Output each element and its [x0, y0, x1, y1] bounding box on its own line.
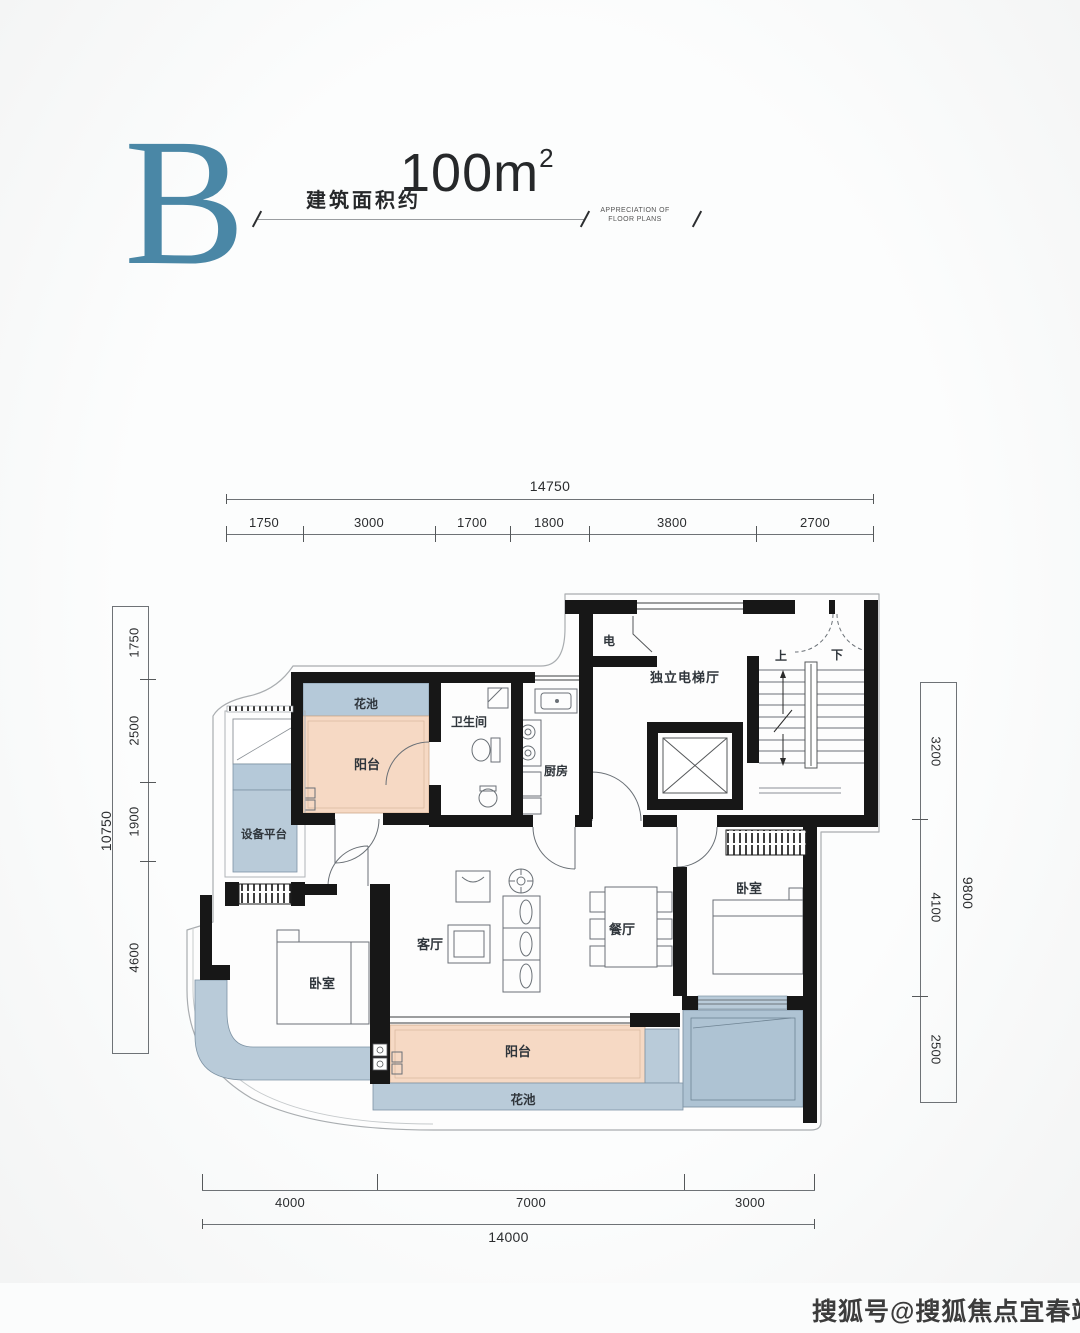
dim-seg: 3000	[715, 1195, 785, 1210]
floor-plan-svg: 电 独立电梯厅 上 下 花池 阳台 卫生间 厨房 设备平台 卧室 客厅 餐厅 卧…	[185, 592, 885, 1152]
dim-seg: 4600	[127, 928, 142, 988]
dim-line	[148, 606, 149, 1054]
label-dining-room: 餐厅	[608, 922, 635, 937]
dim-line	[226, 534, 874, 535]
dim-seg: 1750	[127, 613, 142, 673]
dim-seg: 7000	[496, 1195, 566, 1210]
label-electrical: 电	[603, 633, 615, 648]
unit-letter: B	[124, 112, 245, 294]
header-rule	[258, 219, 584, 220]
tagline: APPRECIATION OF FLOOR PLANS	[596, 206, 674, 224]
label-living-room: 客厅	[417, 937, 443, 952]
dim-tick	[756, 526, 757, 542]
dim-seg: 2500	[127, 701, 142, 761]
dim-seg: 4000	[255, 1195, 325, 1210]
dim-left-total: 10750	[98, 801, 114, 861]
dim-chain-left: 1750 2500 1900 4600 10750	[102, 606, 166, 1054]
dim-cap	[112, 606, 148, 607]
dotted-band	[227, 706, 293, 712]
area-value: 100m2	[400, 142, 554, 204]
dim-seg: 3800	[637, 515, 707, 530]
label-stair-up: 上	[775, 648, 787, 663]
dim-seg: 1900	[127, 792, 142, 852]
dim-seg: 2700	[780, 515, 850, 530]
dim-line	[202, 1190, 815, 1191]
area-unit: m	[493, 143, 539, 203]
dim-cap	[920, 1102, 956, 1103]
dim-chain-right: 3200 4100 2500 9800	[908, 682, 972, 1103]
label-balcony-top: 阳台	[354, 757, 380, 772]
label-equipment-platform: 设备平台	[241, 827, 287, 841]
label-flower-bed-top: 花池	[354, 696, 378, 711]
dim-seg: 2500	[929, 1020, 944, 1080]
dim-line	[202, 1224, 815, 1225]
equipment-tank	[233, 719, 297, 764]
dim-tick	[435, 526, 436, 542]
dim-tick	[912, 996, 928, 997]
dim-bottom-total: 14000	[202, 1229, 815, 1245]
tagline-line2: FLOOR PLANS	[596, 215, 674, 224]
dim-seg: 3200	[929, 722, 944, 782]
dim-tick	[226, 494, 227, 504]
dim-seg: 1800	[514, 515, 584, 530]
dim-tick	[140, 679, 156, 680]
dim-tick	[303, 526, 304, 542]
label-flower-bed-bottom: 花池	[510, 1092, 536, 1107]
header-rule-tick-end	[692, 211, 702, 228]
area-number: 100	[400, 143, 493, 203]
dim-tick	[202, 1174, 203, 1190]
dim-seg: 1750	[229, 515, 299, 530]
dim-line	[920, 682, 921, 1103]
dim-tick	[912, 819, 928, 820]
dim-cap	[920, 682, 956, 683]
dim-line	[226, 499, 874, 500]
dim-cap	[112, 1053, 148, 1054]
dim-right-total: 9800	[960, 863, 976, 923]
label-bathroom: 卫生间	[451, 714, 487, 729]
dim-tick	[814, 1219, 815, 1229]
tagline-line1: APPRECIATION OF	[596, 206, 674, 215]
dim-line	[956, 682, 957, 1103]
dim-seg: 3000	[334, 515, 404, 530]
dim-tick	[140, 782, 156, 783]
floorplan-page: B 建筑面积约 100m2 APPRECIATION OF FLOOR PLAN…	[0, 0, 1080, 1333]
dim-tick	[684, 1174, 685, 1190]
dim-top-total: 14750	[226, 478, 874, 494]
label-elevator-hall: 独立电梯厅	[650, 670, 720, 685]
dim-tick	[202, 1219, 203, 1229]
label-stair-down: 下	[831, 648, 843, 662]
dim-seg: 4100	[929, 878, 944, 938]
label-balcony-bottom: 阳台	[505, 1044, 531, 1059]
dim-tick	[873, 494, 874, 504]
label-kitchen: 厨房	[544, 763, 568, 778]
dim-seg: 1700	[437, 515, 507, 530]
dim-chain-bottom: 4000 7000 3000 14000	[202, 1172, 815, 1250]
dim-tick	[510, 526, 511, 542]
dim-tick	[873, 526, 874, 542]
label-bedroom-left: 卧室	[309, 976, 335, 991]
flower-bed-right-zone	[683, 1010, 803, 1107]
watermark: 搜狐号@搜狐焦点宜春站	[812, 1292, 1080, 1328]
area-exponent: 2	[539, 143, 553, 173]
dim-tick	[377, 1174, 378, 1190]
bedroom-right-window	[698, 996, 787, 1009]
wardrobe-hatch	[726, 830, 806, 855]
dim-tick	[814, 1174, 815, 1190]
dim-tick	[140, 861, 156, 862]
dim-tick	[226, 526, 227, 542]
balustrade-hatch	[239, 884, 291, 904]
dim-tick	[589, 526, 590, 542]
dim-chain-top: 14750 1750 3000 1700 1800 3800 2700	[226, 478, 874, 548]
label-bedroom-right: 卧室	[736, 881, 762, 896]
